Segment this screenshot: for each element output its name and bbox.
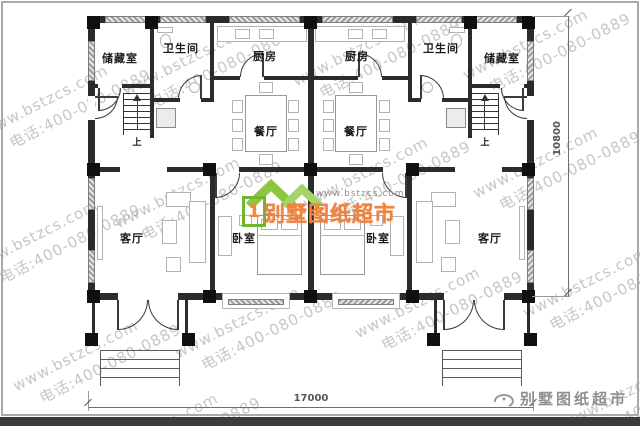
chair: [288, 119, 299, 132]
column: [87, 163, 100, 176]
column: [203, 290, 216, 303]
room-label-living: 客厅: [110, 230, 154, 246]
armchair: [166, 257, 181, 272]
window: [88, 178, 95, 210]
window: [105, 16, 147, 23]
toilet: [449, 27, 465, 33]
brand-name: 别墅图纸超市: [264, 198, 396, 228]
chair: [232, 138, 243, 151]
unit-left: 上: [88, 16, 311, 300]
window: [338, 299, 394, 305]
chair: [288, 138, 299, 151]
sofa: [189, 201, 206, 263]
wall: [264, 76, 311, 80]
wall: [311, 76, 358, 80]
room-label-bathroom: 卫生间: [152, 40, 210, 56]
stove: [259, 29, 274, 39]
sofa: [431, 192, 456, 207]
coffee-table: [445, 220, 460, 244]
door-leaf: [200, 75, 202, 99]
sink: [189, 82, 200, 93]
room-label-bedroom: 卧室: [221, 230, 267, 246]
bottom-bar: [0, 417, 640, 426]
porch-column: [427, 333, 440, 346]
building-plan: 上: [88, 16, 534, 300]
chair: [379, 119, 390, 132]
sofa: [166, 192, 191, 207]
wall: [408, 16, 412, 102]
column: [87, 290, 100, 303]
door-leaf: [117, 300, 119, 330]
wall: [122, 84, 150, 88]
column: [304, 290, 317, 303]
door-swing-arc: [504, 96, 527, 119]
room-label-dining: 餐厅: [243, 123, 289, 139]
wall: [407, 172, 412, 293]
chair: [349, 154, 363, 165]
brand-site-url: www.bstzcs.com: [316, 189, 405, 199]
wall: [524, 84, 534, 88]
column: [406, 290, 419, 303]
door-leaf: [503, 300, 505, 330]
window: [475, 16, 517, 23]
brand-logo: 1 别墅图纸超市 www.bstzcs.com: [242, 170, 402, 230]
wall: [214, 76, 240, 80]
wall: [308, 16, 314, 300]
window: [228, 299, 284, 305]
column: [145, 16, 158, 29]
column: [522, 163, 535, 176]
floor-plan-page: www.bstzcs.com电话:400-080-0889 www.bstzcs…: [0, 0, 640, 426]
chair: [379, 100, 390, 113]
window: [88, 250, 95, 283]
utility-shaft: [446, 108, 466, 128]
sink: [422, 82, 433, 93]
chair: [323, 138, 334, 151]
door-swing-arc: [215, 173, 240, 198]
room-label-bedroom: 卧室: [355, 230, 401, 246]
stair-direction-arrow: [137, 97, 138, 130]
chair: [349, 82, 363, 93]
floor-number-badge: 1: [242, 196, 266, 227]
kitchen-sink: [235, 29, 250, 39]
room-label-storage: 储藏室: [90, 50, 150, 66]
column: [522, 16, 535, 29]
door-leaf: [405, 173, 407, 198]
chair: [323, 100, 334, 113]
column: [406, 163, 419, 176]
door-leaf: [215, 173, 217, 198]
footer-brand: 别墅图纸超市: [492, 388, 628, 409]
room-label-bathroom: 卫生间: [412, 40, 470, 56]
chair: [232, 100, 243, 113]
window: [527, 178, 534, 210]
kitchen-sink: [372, 29, 387, 39]
footer-brand-text: 别墅图纸超市: [520, 388, 628, 409]
door-swing-arc: [95, 96, 118, 119]
stair-up-label: 上: [128, 135, 146, 148]
column: [304, 16, 317, 29]
room-label-storage: 储藏室: [472, 50, 532, 66]
chair: [259, 154, 273, 165]
dimension-label-height: 10800: [552, 121, 563, 156]
tv-cabinet: [97, 206, 103, 260]
window: [160, 16, 206, 23]
porch-column: [524, 333, 537, 346]
footer-logo-icon: [492, 390, 516, 408]
sofa: [416, 201, 433, 263]
column: [87, 16, 100, 29]
door-leaf: [177, 300, 179, 330]
toilet: [157, 27, 173, 33]
wall: [150, 98, 180, 102]
window: [527, 250, 534, 283]
room-label-living: 客厅: [468, 230, 512, 246]
window: [229, 16, 300, 23]
door-opening: [88, 96, 95, 120]
chair: [379, 138, 390, 151]
dimension-line-horizontal: [88, 407, 534, 408]
unit-right: 上: [311, 16, 534, 300]
door-leaf: [95, 96, 118, 98]
stair-arrow-head: [481, 90, 489, 101]
wall: [442, 98, 472, 102]
utility-shaft: [156, 108, 176, 128]
column: [464, 16, 477, 29]
porch-column: [182, 333, 195, 346]
door-leaf: [443, 300, 445, 330]
dimension-label-width: 17000: [88, 393, 534, 404]
door-leaf: [504, 96, 527, 98]
room-label-kitchen: 厨房: [326, 48, 388, 64]
wall: [210, 16, 214, 102]
window: [322, 16, 393, 23]
entry-steps: [100, 350, 180, 386]
window: [416, 16, 462, 23]
column: [203, 163, 216, 176]
dimension-line-vertical: [568, 16, 569, 297]
room-label-kitchen: 厨房: [234, 48, 296, 64]
door-opening: [527, 96, 534, 120]
tv-cabinet: [519, 206, 525, 260]
wall: [88, 84, 98, 88]
stove: [348, 29, 363, 39]
armchair: [441, 257, 456, 272]
chair: [288, 100, 299, 113]
wall: [201, 98, 214, 102]
stair-arrow-head: [133, 90, 141, 101]
stair-up-label: 上: [476, 135, 494, 148]
coffee-table: [162, 220, 177, 244]
porch-column: [85, 333, 98, 346]
room-label-dining: 餐厅: [333, 123, 379, 139]
wall: [382, 76, 408, 80]
chair: [259, 82, 273, 93]
entry-steps: [442, 350, 522, 386]
stair-direction-arrow: [484, 97, 485, 130]
wall: [472, 84, 500, 88]
chair: [232, 119, 243, 132]
